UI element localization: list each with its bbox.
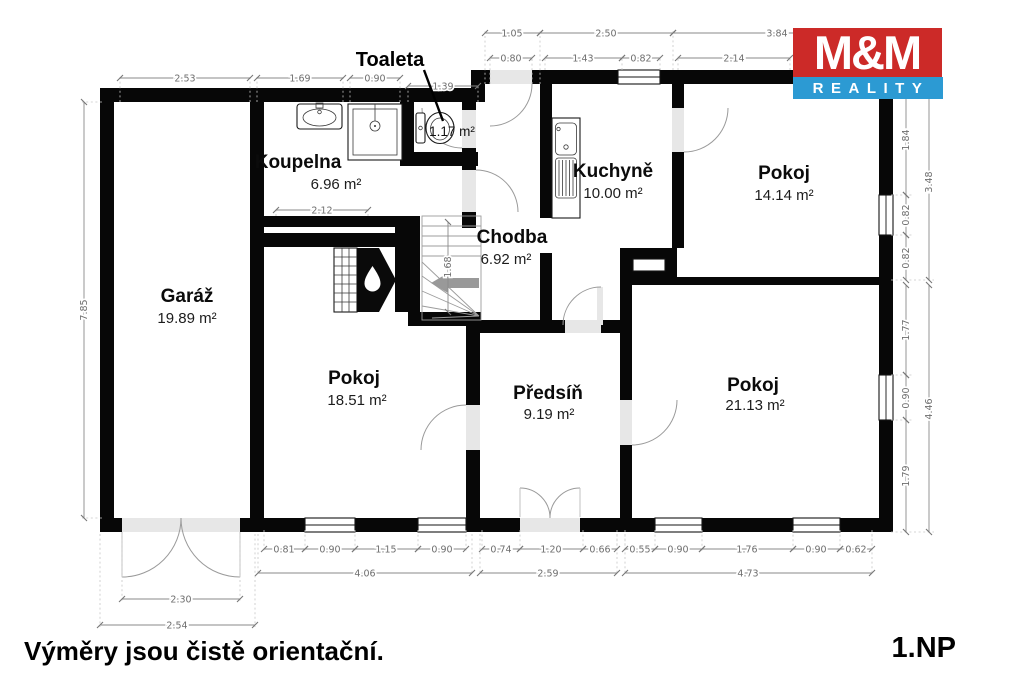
wall-segment: [672, 84, 684, 108]
window: [879, 375, 893, 420]
wall-segment: [462, 102, 476, 110]
dim-label: 1.05: [501, 29, 522, 40]
wall-segment: [100, 88, 114, 532]
window: [418, 518, 466, 532]
dim-label: 4.06: [354, 569, 375, 580]
room-area-predsin: 9.19 m²: [524, 406, 575, 423]
door-leaf: [466, 405, 480, 450]
door-arc: [550, 488, 580, 518]
dim-label: 2.30: [170, 595, 191, 606]
floor-label: 1.NP: [892, 632, 956, 664]
dim-label: 0.90: [431, 545, 452, 556]
stairs-arrow-icon: [431, 273, 479, 293]
door-arc: [632, 400, 677, 445]
dim-label: 1.76: [736, 545, 757, 556]
door-leaf: [490, 70, 532, 84]
front-door-leaf: [520, 518, 580, 532]
dim-label: 1.69: [289, 74, 310, 85]
dim-label: 1.77: [901, 319, 912, 340]
wall-segment: [620, 445, 632, 518]
dim-label: 2.50: [595, 29, 616, 40]
logo: M&M REALITY: [793, 26, 943, 99]
dim-label: 0.90: [901, 387, 912, 408]
door-arc: [563, 287, 601, 325]
wall-segment: [540, 84, 552, 218]
wall-segment: [252, 216, 395, 227]
dim-label: 1.39: [432, 82, 453, 93]
room-area-kuchyne: 10.00 m²: [583, 185, 642, 202]
wall-segment: [672, 152, 684, 248]
door-leaf: [672, 108, 684, 152]
room-name-koupelna: Koupelna: [255, 152, 342, 173]
dim-label: 0.80: [500, 54, 521, 65]
chimney-icon: [334, 248, 396, 312]
wall-segment: [466, 333, 480, 405]
room-name-toaleta: Toaleta: [356, 49, 425, 71]
dim-label: 1.84: [901, 129, 912, 150]
room-name-pokoj3: Pokoj: [727, 375, 779, 396]
window: [618, 70, 660, 84]
dim-label: 2.53: [174, 74, 195, 85]
room-name-pokoj1: Pokoj: [758, 163, 810, 184]
wall-segment: [620, 278, 632, 400]
dim-label: 4.46: [924, 398, 935, 419]
footer: Výměry jsou čistě orientační. 1.NP: [24, 632, 956, 666]
washbasin-icon: [297, 103, 342, 129]
door-arc: [520, 488, 550, 518]
dim-label: 0.90: [805, 545, 826, 556]
dim-label: 1.15: [375, 545, 396, 556]
dim-label: 0.74: [490, 545, 511, 556]
door-arc: [684, 108, 728, 152]
room-name-kuchyne: Kuchyně: [573, 161, 653, 182]
window: [655, 518, 702, 532]
room-area-pokoj2: 18.51 m²: [327, 392, 386, 409]
logo-top-text: M&M: [814, 26, 920, 79]
window: [793, 518, 840, 532]
door-arc: [421, 405, 466, 450]
room-area-garaz: 19.89 m²: [157, 310, 216, 327]
room-name-predsin: Předsíň: [513, 383, 583, 404]
dim-label: 0.90: [364, 74, 385, 85]
dim-label: 1.68: [443, 256, 454, 277]
dim-label: 3.48: [924, 171, 935, 192]
dim-label: 2.12: [311, 206, 332, 217]
window: [879, 195, 893, 235]
logo-bottom-text: REALITY: [813, 80, 930, 97]
door-leaf: [462, 170, 476, 212]
dim-label: 1.20: [540, 545, 561, 556]
dim-label: 2.54: [166, 621, 187, 632]
room-name-chodba: Chodba: [477, 227, 548, 248]
wall-segment: [395, 216, 420, 312]
wall-segment: [462, 148, 476, 170]
floorplan-svg: 1.05 2.50 3.84 0.80 1.43 0.82 2.14 2.53 …: [0, 0, 1024, 683]
dim-label: 1.43: [572, 54, 593, 65]
door-leaf: [597, 287, 603, 325]
room-area-toaleta: 1.17 m²: [429, 124, 475, 139]
dim-label: 0.82: [630, 54, 651, 65]
dim-label: 1.79: [901, 465, 912, 486]
wall-segment: [100, 88, 485, 102]
door-arc: [490, 84, 532, 126]
dim-label: 0.81: [273, 545, 294, 556]
dim-label: 3.84: [766, 29, 787, 40]
room-area-pokoj1: 14.14 m²: [754, 187, 813, 204]
dim-label: 0.55: [629, 545, 650, 556]
room-area-pokoj3: 21.13 m²: [725, 397, 784, 414]
room-name-pokoj2: Pokoj: [328, 368, 380, 389]
dim-label: 7.85: [79, 299, 90, 320]
door-arc: [476, 170, 518, 212]
wall-segment: [264, 233, 395, 247]
dim-label: 0.90: [319, 545, 340, 556]
dim-label: 2.14: [723, 54, 744, 65]
dim-label: 0.62: [845, 545, 866, 556]
shower-icon: [348, 104, 402, 160]
disclaimer-text: Výměry jsou čistě orientační.: [24, 636, 384, 666]
window: [305, 518, 355, 532]
dim-label: 0.82: [901, 204, 912, 225]
door-leaf: [565, 320, 601, 333]
room-name-garaz: Garáž: [161, 286, 214, 307]
door-leaf: [620, 400, 632, 445]
wall-segment: [540, 253, 552, 325]
dim-label: 0.82: [901, 247, 912, 268]
dim-label: 0.90: [667, 545, 688, 556]
floorplan-page: 1.05 2.50 3.84 0.80 1.43 0.82 2.14 2.53 …: [0, 0, 1024, 683]
wall-segment: [632, 277, 879, 285]
room-area-chodba: 6.92 m²: [481, 251, 532, 268]
wall-segment: [466, 450, 480, 518]
dim-label: 0.66: [589, 545, 610, 556]
wall-niche: [633, 259, 665, 271]
dim-label: 2.59: [537, 569, 558, 580]
room-area-koupelna: 6.96 m²: [311, 176, 362, 193]
wall-segment: [879, 84, 893, 532]
dim-label: 4.73: [737, 569, 758, 580]
walls: [100, 70, 893, 532]
